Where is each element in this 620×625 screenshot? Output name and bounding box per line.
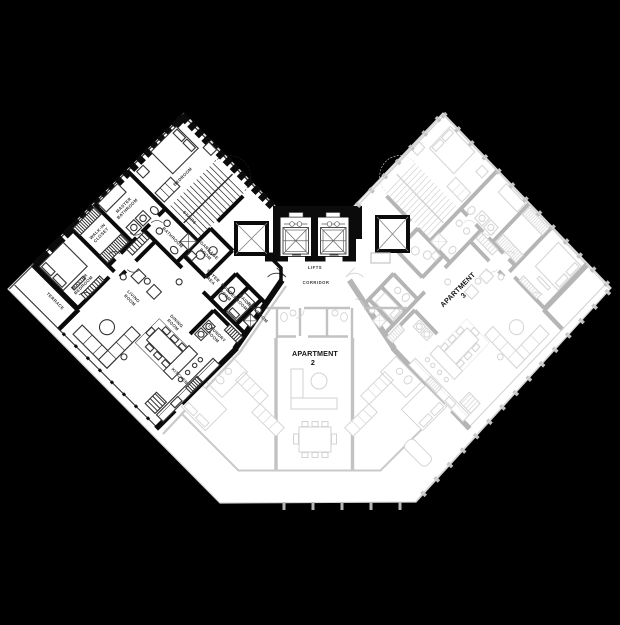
svg-text:APARTMENT: APARTMENT xyxy=(292,349,338,358)
svg-text:LIFTS: LIFTS xyxy=(308,265,322,270)
svg-text:CORRIDOR: CORRIDOR xyxy=(303,280,330,285)
svg-text:2: 2 xyxy=(311,358,315,367)
